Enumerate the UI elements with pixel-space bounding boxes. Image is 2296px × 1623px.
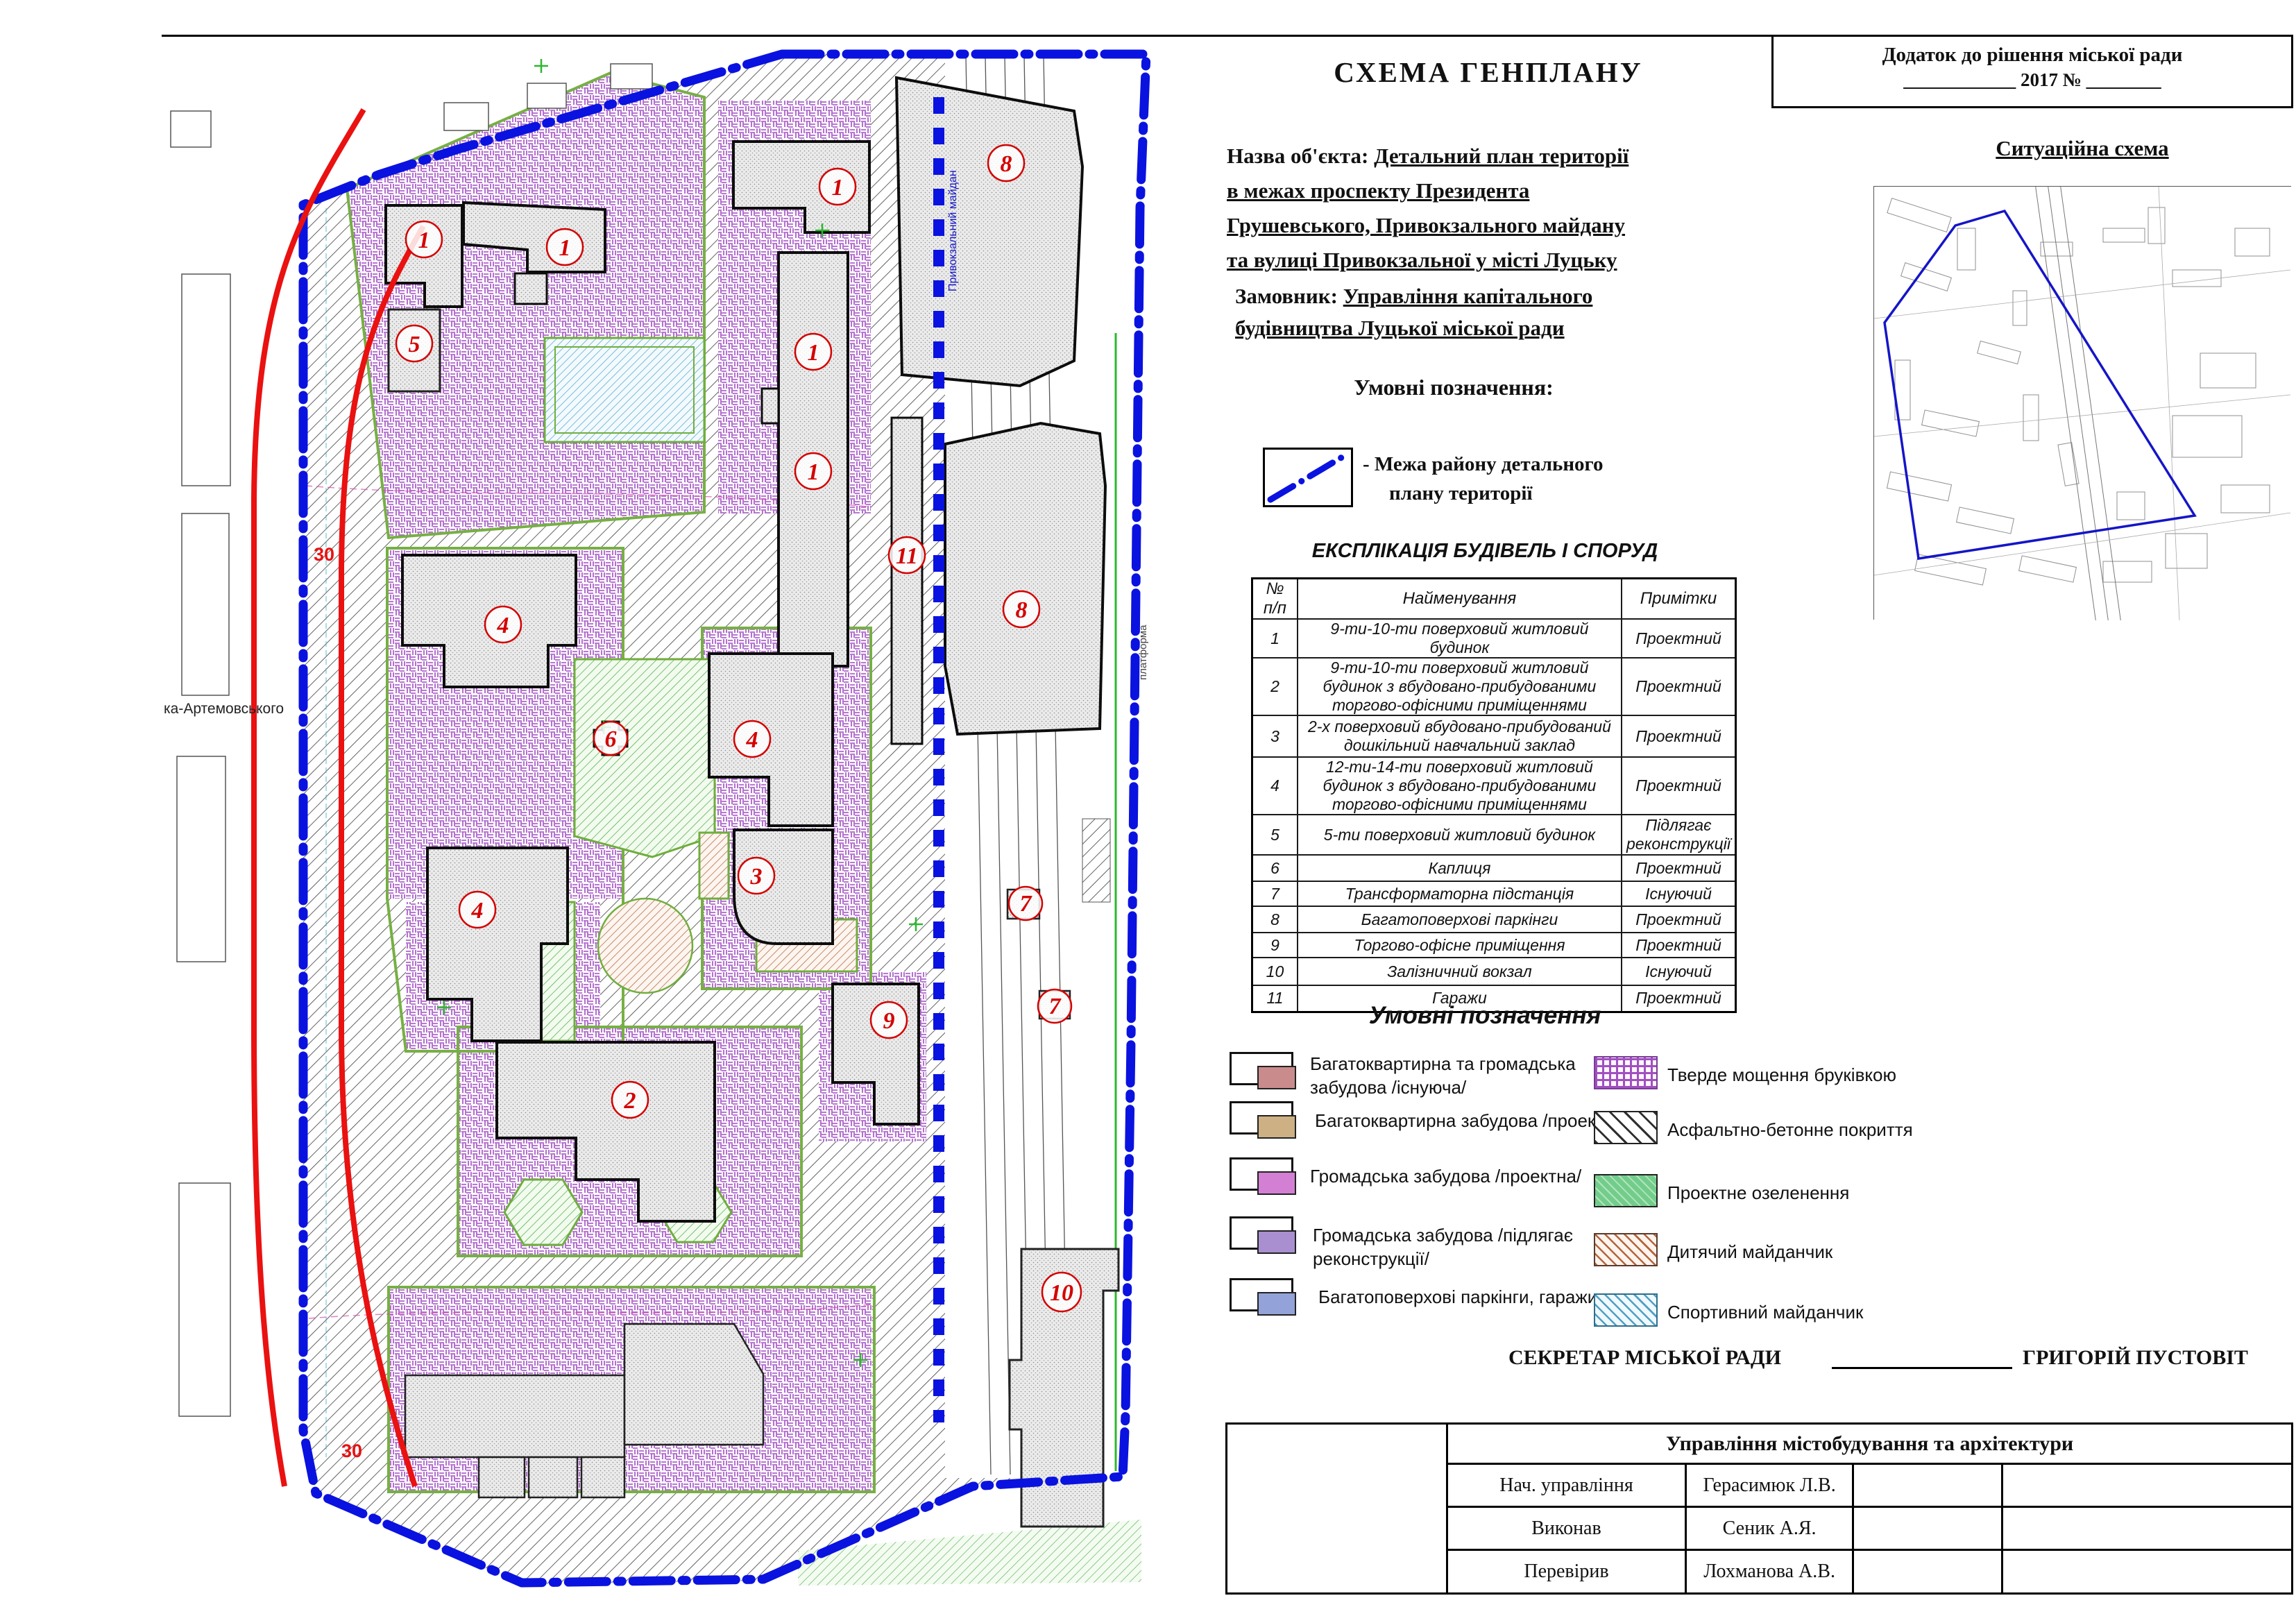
- secretary-label: СЕКРЕТАР МІСЬКОЇ РАДИ: [1508, 1346, 1781, 1370]
- legend-label-playground: Дитячий майданчик: [1667, 1240, 1987, 1264]
- table-row: 19-ти-10-ти поверховий житловий будинокП…: [1252, 619, 1736, 658]
- svg-text:8: 8: [1001, 151, 1012, 177]
- legend-label-greenery: Проектне озеленення: [1667, 1181, 1987, 1205]
- genplan-sheet: ка-Артемовського Привокзальний майдан пл…: [0, 0, 2296, 1623]
- expl-col-note: Примітки: [1622, 579, 1736, 620]
- table-row: 9Торгово-офісне приміщенняПроектний: [1252, 933, 1736, 958]
- table-row: 32-х поверховий вбудовано-прибудований д…: [1252, 715, 1736, 757]
- legend-label-paving: Тверде мощення бруківкою: [1667, 1063, 1987, 1087]
- page-title: СХЕМА ГЕНПЛАНУ: [1322, 56, 1655, 89]
- svg-text:7: 7: [1020, 891, 1033, 917]
- redline-width-label-2: 30: [341, 1441, 362, 1461]
- table-row: 7Трансформаторна підстанціяІснуючий: [1252, 881, 1736, 906]
- dodatok-line1: Додаток до рішення міської ради: [1774, 44, 2291, 67]
- situational-scheme-title: Ситуаційна схема: [1873, 136, 2291, 161]
- table-row: 6КаплицяПроектний: [1252, 855, 1736, 881]
- legend-swatch-public-project: [1230, 1157, 1293, 1191]
- secretary-signature-line: [1832, 1349, 2012, 1369]
- svg-text:2: 2: [624, 1088, 636, 1114]
- legend-swatch-residential-project: [1230, 1101, 1293, 1135]
- svg-text:9: 9: [883, 1008, 895, 1034]
- object-line2: в межах проспекту Президента: [1227, 173, 1754, 208]
- customer-line2: будівництва Луцької міської ради: [1235, 312, 1721, 344]
- svg-text:5: 5: [409, 332, 420, 357]
- svg-text:1: 1: [559, 235, 571, 261]
- object-line4: та вулиці Привокзальної у місті Луцьку: [1227, 243, 1754, 278]
- svg-text:1: 1: [808, 340, 819, 366]
- title-block-header: Управління містобудування та архітектури: [1447, 1424, 2293, 1464]
- legend-swatch-greenery: [1594, 1174, 1658, 1207]
- svg-text:1: 1: [808, 459, 819, 485]
- dodatok-box: Додаток до рішення міської ради ________…: [1771, 35, 2293, 108]
- svg-text:4: 4: [497, 613, 509, 638]
- legend-swatch-paving: [1594, 1056, 1658, 1089]
- svg-text:3: 3: [750, 864, 763, 890]
- legend-swatch-public-reconstruction: [1230, 1216, 1293, 1250]
- rail-square-label: Привокзальний майдан: [947, 170, 959, 291]
- dodatok-line2: ____________ 2017 № ________: [1774, 69, 2291, 91]
- svg-text:10: 10: [1050, 1280, 1073, 1306]
- expl-col-name: Найменування: [1298, 579, 1622, 620]
- object-name-block: Назва об'єкта: Детальний план території …: [1227, 139, 1754, 278]
- explication-table: №п/п Найменування Примітки 19-ти-10-ти п…: [1251, 577, 1737, 1013]
- expl-col-num: №п/п: [1252, 579, 1298, 620]
- legend1-boundary-label: - Межа району детального плану території: [1363, 450, 1696, 508]
- title-block-spacer: [1227, 1424, 1447, 1594]
- object-line1: Детальний план території: [1374, 144, 1629, 168]
- legend-swatch-parking: [1230, 1278, 1293, 1311]
- explication-title: ЕКСПЛІКАЦІЯ БУДІВЕЛЬ І СПОРУД: [1277, 540, 1693, 563]
- customer-block: Замовник: Управління капітального будівн…: [1235, 280, 1721, 344]
- legend-swatch-sport: [1594, 1293, 1658, 1327]
- secretary-name: ГРИГОРІЙ ПУСТОВІТ: [2023, 1346, 2248, 1370]
- svg-text:11: 11: [896, 543, 918, 569]
- customer-label: Замовник:: [1235, 284, 1338, 308]
- svg-text:6: 6: [605, 726, 617, 752]
- legend-swatch-playground: [1594, 1233, 1658, 1266]
- legend1-boundary-symbol: [1263, 448, 1353, 507]
- svg-text:7: 7: [1049, 994, 1062, 1019]
- svg-text:4: 4: [471, 898, 484, 924]
- object-line3: Грушевського, Привокзального майдану: [1227, 208, 1754, 243]
- svg-text:8: 8: [1016, 597, 1028, 623]
- platform-label: платформа: [1137, 624, 1149, 680]
- legend1-title: Умовні позначення:: [1304, 375, 1603, 400]
- customer-line1: Управління капітального: [1343, 284, 1593, 308]
- legend-swatch-asphalt: [1594, 1111, 1658, 1144]
- table-row: 10Залізничний вокзалІснуючий: [1252, 958, 1736, 985]
- legend-swatch-existing: [1230, 1052, 1293, 1085]
- svg-text:1: 1: [832, 175, 844, 201]
- title-block-table: Управління містобудування та архітектури…: [1225, 1422, 2293, 1595]
- legend-label-asphalt: Асфальтно-бетонне покриття: [1667, 1118, 1987, 1141]
- legend-label-sport: Спортивний майданчик: [1667, 1300, 1987, 1324]
- table-row: 55-ти поверховий житловий будинокПідляга…: [1252, 815, 1736, 855]
- svg-text:1: 1: [418, 228, 430, 253]
- genplan-map: ка-Артемовського Привокзальний майдан пл…: [162, 35, 1225, 1592]
- legend2-title: Умовні позначення: [1346, 1002, 1624, 1030]
- legend-label-existing: Багатоквартирна та громадськазабудова /і…: [1310, 1052, 1643, 1099]
- street-label: ка-Артемовського: [164, 701, 284, 717]
- redline-width-label-1: 30: [314, 544, 334, 565]
- svg-text:4: 4: [746, 727, 758, 753]
- situational-scheme-drawing: [1874, 187, 2292, 620]
- table-row: 8Багатоповерхові паркінгиПроектний: [1252, 906, 1736, 933]
- situational-scheme-map: [1873, 186, 2291, 620]
- object-label: Назва об'єкта:: [1227, 144, 1368, 168]
- table-row: 412-ти-14-ти поверховий житловий будинок…: [1252, 757, 1736, 815]
- table-row: 29-ти-10-ти поверховий житловий будинок …: [1252, 658, 1736, 715]
